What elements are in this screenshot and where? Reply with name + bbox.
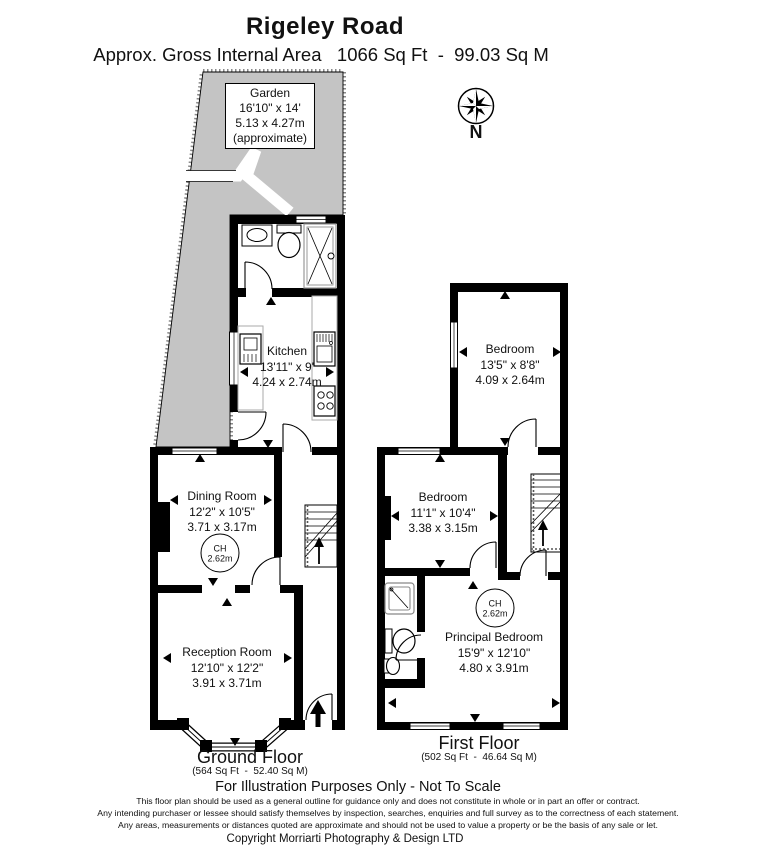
basin-icon bbox=[242, 225, 272, 246]
first-fixtures bbox=[384, 583, 415, 675]
room-label-bedroom-middle: Bedroom 11'1" x 10'4" 3.38 x 3.15m bbox=[408, 490, 477, 537]
room-label-principal-bedroom: Principal Bedroom 15'9" x 12'10" 4.80 x … bbox=[445, 630, 543, 677]
room-name: Reception Room bbox=[182, 645, 271, 661]
room-label-dining-room: Dining Room 12'2" x 10'5" 3.71 x 3.17m bbox=[187, 489, 256, 536]
floor-plan-drawing bbox=[0, 0, 776, 867]
kitchen-hall-door bbox=[283, 424, 311, 452]
first-floor-label: First Floor bbox=[439, 733, 520, 754]
compass-north-label: N bbox=[470, 122, 483, 143]
room-name: Bedroom bbox=[408, 490, 477, 506]
garden-dimensions-imperial: 16'10" x 14' bbox=[233, 101, 307, 116]
bathroom-door bbox=[245, 262, 272, 290]
room-dimensions-imperial: 11'1" x 10'4" bbox=[408, 506, 477, 522]
first-floor-area: (502 Sq Ft - 46.64 Sq M) bbox=[421, 752, 537, 763]
back-door bbox=[238, 412, 266, 440]
disclaimer-line: This floor plan should be used as a gene… bbox=[0, 795, 776, 807]
ground-stairs bbox=[305, 505, 337, 567]
garden-name: Garden bbox=[233, 86, 307, 101]
ground-fixtures bbox=[238, 224, 337, 420]
first-stairs bbox=[531, 474, 562, 552]
shower-icon-first bbox=[385, 583, 414, 614]
garden-label: Garden 16'10" x 14' 5.13 x 4.27m (approx… bbox=[225, 83, 315, 149]
ceiling-height-badge-ground: CH 2.62m bbox=[201, 534, 240, 573]
shower-icon-ground bbox=[304, 224, 336, 288]
principal-bedroom-door bbox=[520, 550, 546, 576]
room-dimensions-imperial: 12'10" x 12'2" bbox=[182, 661, 271, 677]
ch-value: 2.62m bbox=[482, 608, 507, 618]
room-dimensions-imperial: 13'11" x 9' bbox=[252, 360, 321, 376]
page-title: Rigeley Road bbox=[246, 13, 404, 41]
copyright-text: Copyright Morriarti Photography & Design… bbox=[227, 833, 464, 845]
disclaimer-text: This floor plan should be used as a gene… bbox=[0, 795, 776, 831]
room-dimensions-metric: 4.80 x 3.91m bbox=[445, 661, 543, 677]
illustration-notice: For Illustration Purposes Only - Not To … bbox=[215, 779, 501, 795]
room-name: Bedroom bbox=[475, 342, 544, 358]
ground-floor-label: Ground Floor bbox=[197, 747, 303, 768]
room-dimensions-metric: 4.09 x 2.64m bbox=[475, 373, 544, 389]
room-label-reception-room: Reception Room 12'10" x 12'2" 3.91 x 3.7… bbox=[182, 645, 271, 692]
room-dimensions-imperial: 12'2" x 10'5" bbox=[187, 505, 256, 521]
room-dimensions-metric: 3.38 x 3.15m bbox=[408, 521, 477, 537]
bedroom-middle-door bbox=[470, 542, 496, 568]
page-subtitle: Approx. Gross Internal Area 1066 Sq Ft -… bbox=[93, 44, 549, 66]
chimney-breast-first bbox=[377, 496, 391, 540]
room-label-kitchen: Kitchen 13'11" x 9' 4.24 x 2.74m bbox=[252, 344, 321, 391]
dining-door bbox=[252, 557, 280, 585]
ch-label: CH bbox=[489, 598, 502, 608]
floor-plan-page: Rigeley Road Approx. Gross Internal Area… bbox=[0, 0, 776, 867]
garden-note: (approximate) bbox=[233, 131, 307, 146]
disclaimer-line: Any intending purchaser or lessee should… bbox=[0, 807, 776, 819]
ch-value: 2.62m bbox=[207, 553, 232, 563]
disclaimer-line: Any areas, measurements or distances quo… bbox=[0, 819, 776, 831]
room-dimensions-metric: 3.91 x 3.71m bbox=[182, 676, 271, 692]
room-name: Principal Bedroom bbox=[445, 630, 543, 646]
hob-icon bbox=[314, 386, 335, 416]
ceiling-height-badge-first: CH 2.62m bbox=[476, 589, 515, 628]
compass-icon bbox=[458, 88, 495, 125]
room-name: Kitchen bbox=[252, 344, 321, 360]
bedroom-rear-door bbox=[508, 419, 536, 447]
toilet-icon-ground bbox=[277, 225, 301, 258]
entrance-arrow bbox=[310, 700, 326, 727]
room-label-bedroom-rear: Bedroom 13'5" x 8'8" 4.09 x 2.64m bbox=[475, 342, 544, 389]
room-dimensions-imperial: 15'9" x 12'10" bbox=[445, 646, 543, 662]
room-name: Dining Room bbox=[187, 489, 256, 505]
garden-dimensions-metric: 5.13 x 4.27m bbox=[233, 116, 307, 131]
ground-floor-area: (564 Sq Ft - 52.40 Sq M) bbox=[192, 766, 308, 777]
room-dimensions-imperial: 13'5" x 8'8" bbox=[475, 358, 544, 374]
room-dimensions-metric: 4.24 x 2.74m bbox=[252, 375, 321, 391]
chimney-breast-ground bbox=[158, 502, 170, 552]
ch-label: CH bbox=[214, 543, 227, 553]
toilet-icon-first bbox=[385, 629, 415, 653]
